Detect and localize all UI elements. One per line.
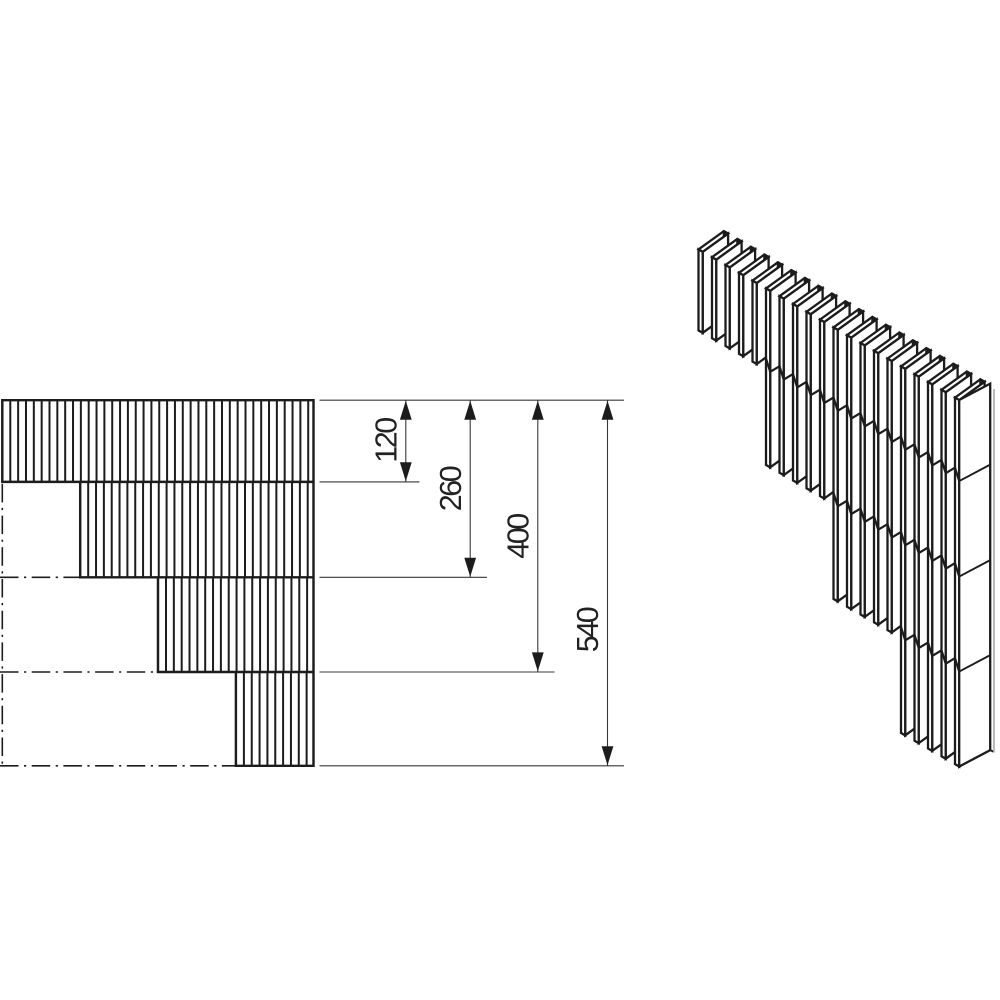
svg-text:400: 400 xyxy=(502,514,536,559)
svg-text:540: 540 xyxy=(571,607,605,652)
svg-text:120: 120 xyxy=(370,418,404,463)
svg-text:260: 260 xyxy=(434,466,468,511)
